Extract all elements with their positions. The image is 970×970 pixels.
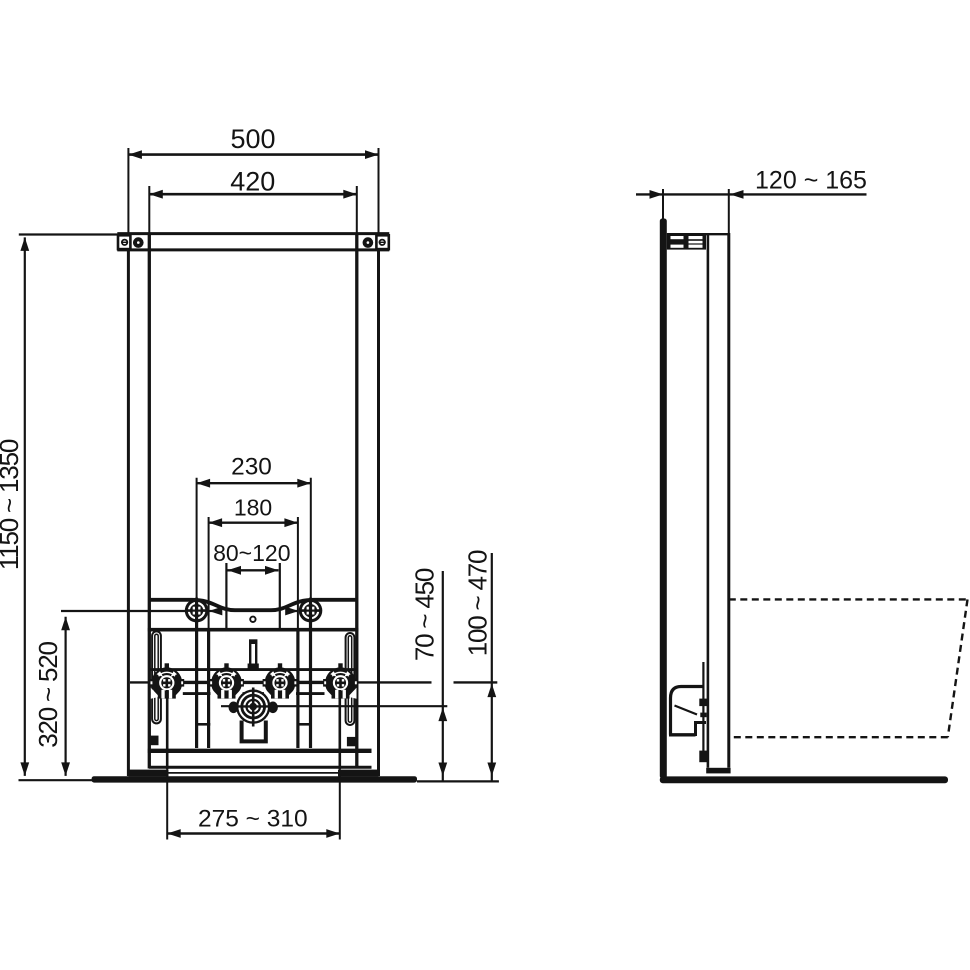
- svg-text:320 ~ 520: 320 ~ 520: [33, 641, 63, 747]
- svg-text:100 ~ 470: 100 ~ 470: [463, 550, 493, 656]
- svg-text:70 ~ 450: 70 ~ 450: [410, 568, 440, 661]
- svg-text:420: 420: [230, 166, 275, 196]
- svg-text:500: 500: [230, 124, 275, 154]
- svg-text:1150 ~ 1350: 1150 ~ 1350: [0, 439, 24, 570]
- svg-text:275 ~ 310: 275 ~ 310: [198, 806, 308, 833]
- svg-text:120 ~ 165: 120 ~ 165: [755, 167, 867, 195]
- svg-text:180: 180: [234, 494, 272, 520]
- svg-text:80~120: 80~120: [213, 540, 290, 566]
- svg-text:230: 230: [231, 454, 272, 481]
